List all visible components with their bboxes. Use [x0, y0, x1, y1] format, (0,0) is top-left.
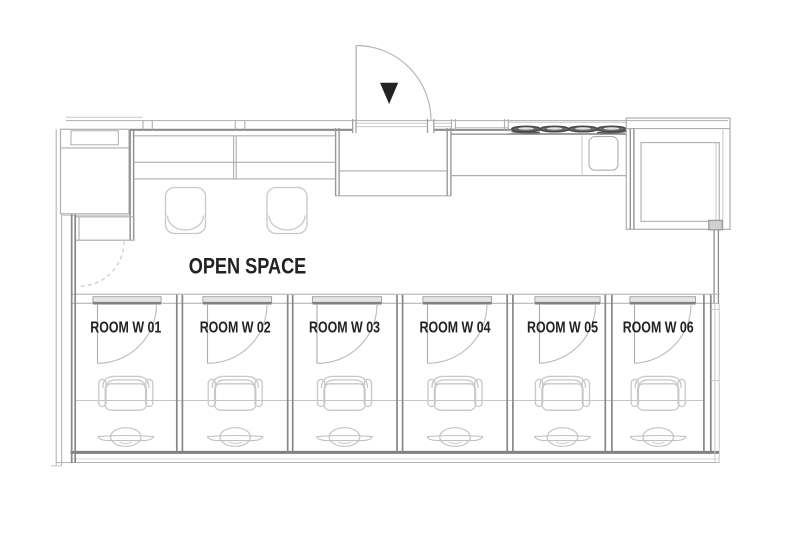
svg-text:ROOM W 02: ROOM W 02 [200, 320, 271, 337]
svg-text:ROOM W 01: ROOM W 01 [90, 320, 161, 337]
svg-text:ROOM W 05: ROOM W 05 [527, 320, 598, 337]
svg-text:OPEN SPACE: OPEN SPACE [189, 253, 307, 278]
svg-text:ROOM W 06: ROOM W 06 [623, 320, 694, 337]
svg-text:ROOM W 04: ROOM W 04 [420, 320, 491, 337]
svg-text:ROOM W 03: ROOM W 03 [309, 320, 380, 337]
